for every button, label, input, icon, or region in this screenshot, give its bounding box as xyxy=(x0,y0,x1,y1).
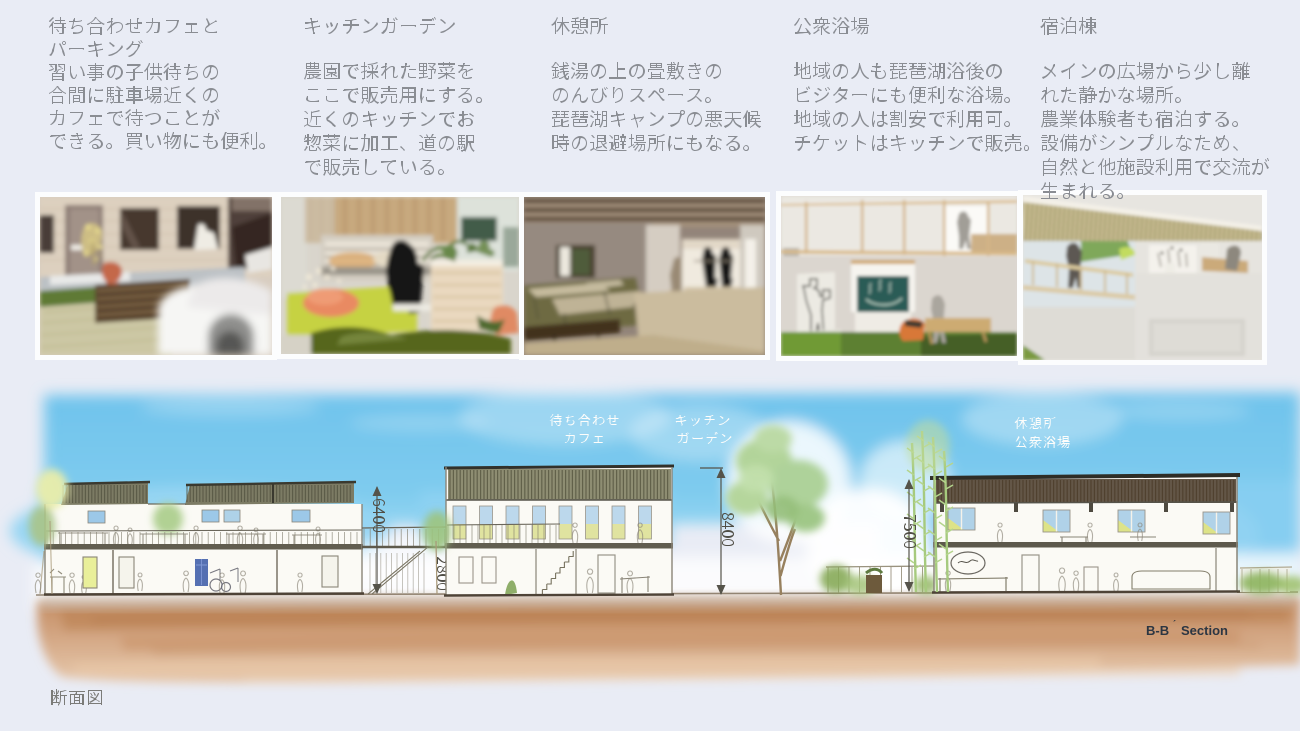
svg-text:B-B: B-B xyxy=(1146,623,1169,638)
svg-text:´: ´ xyxy=(1173,619,1176,629)
svg-text:Section: Section xyxy=(1181,623,1228,638)
